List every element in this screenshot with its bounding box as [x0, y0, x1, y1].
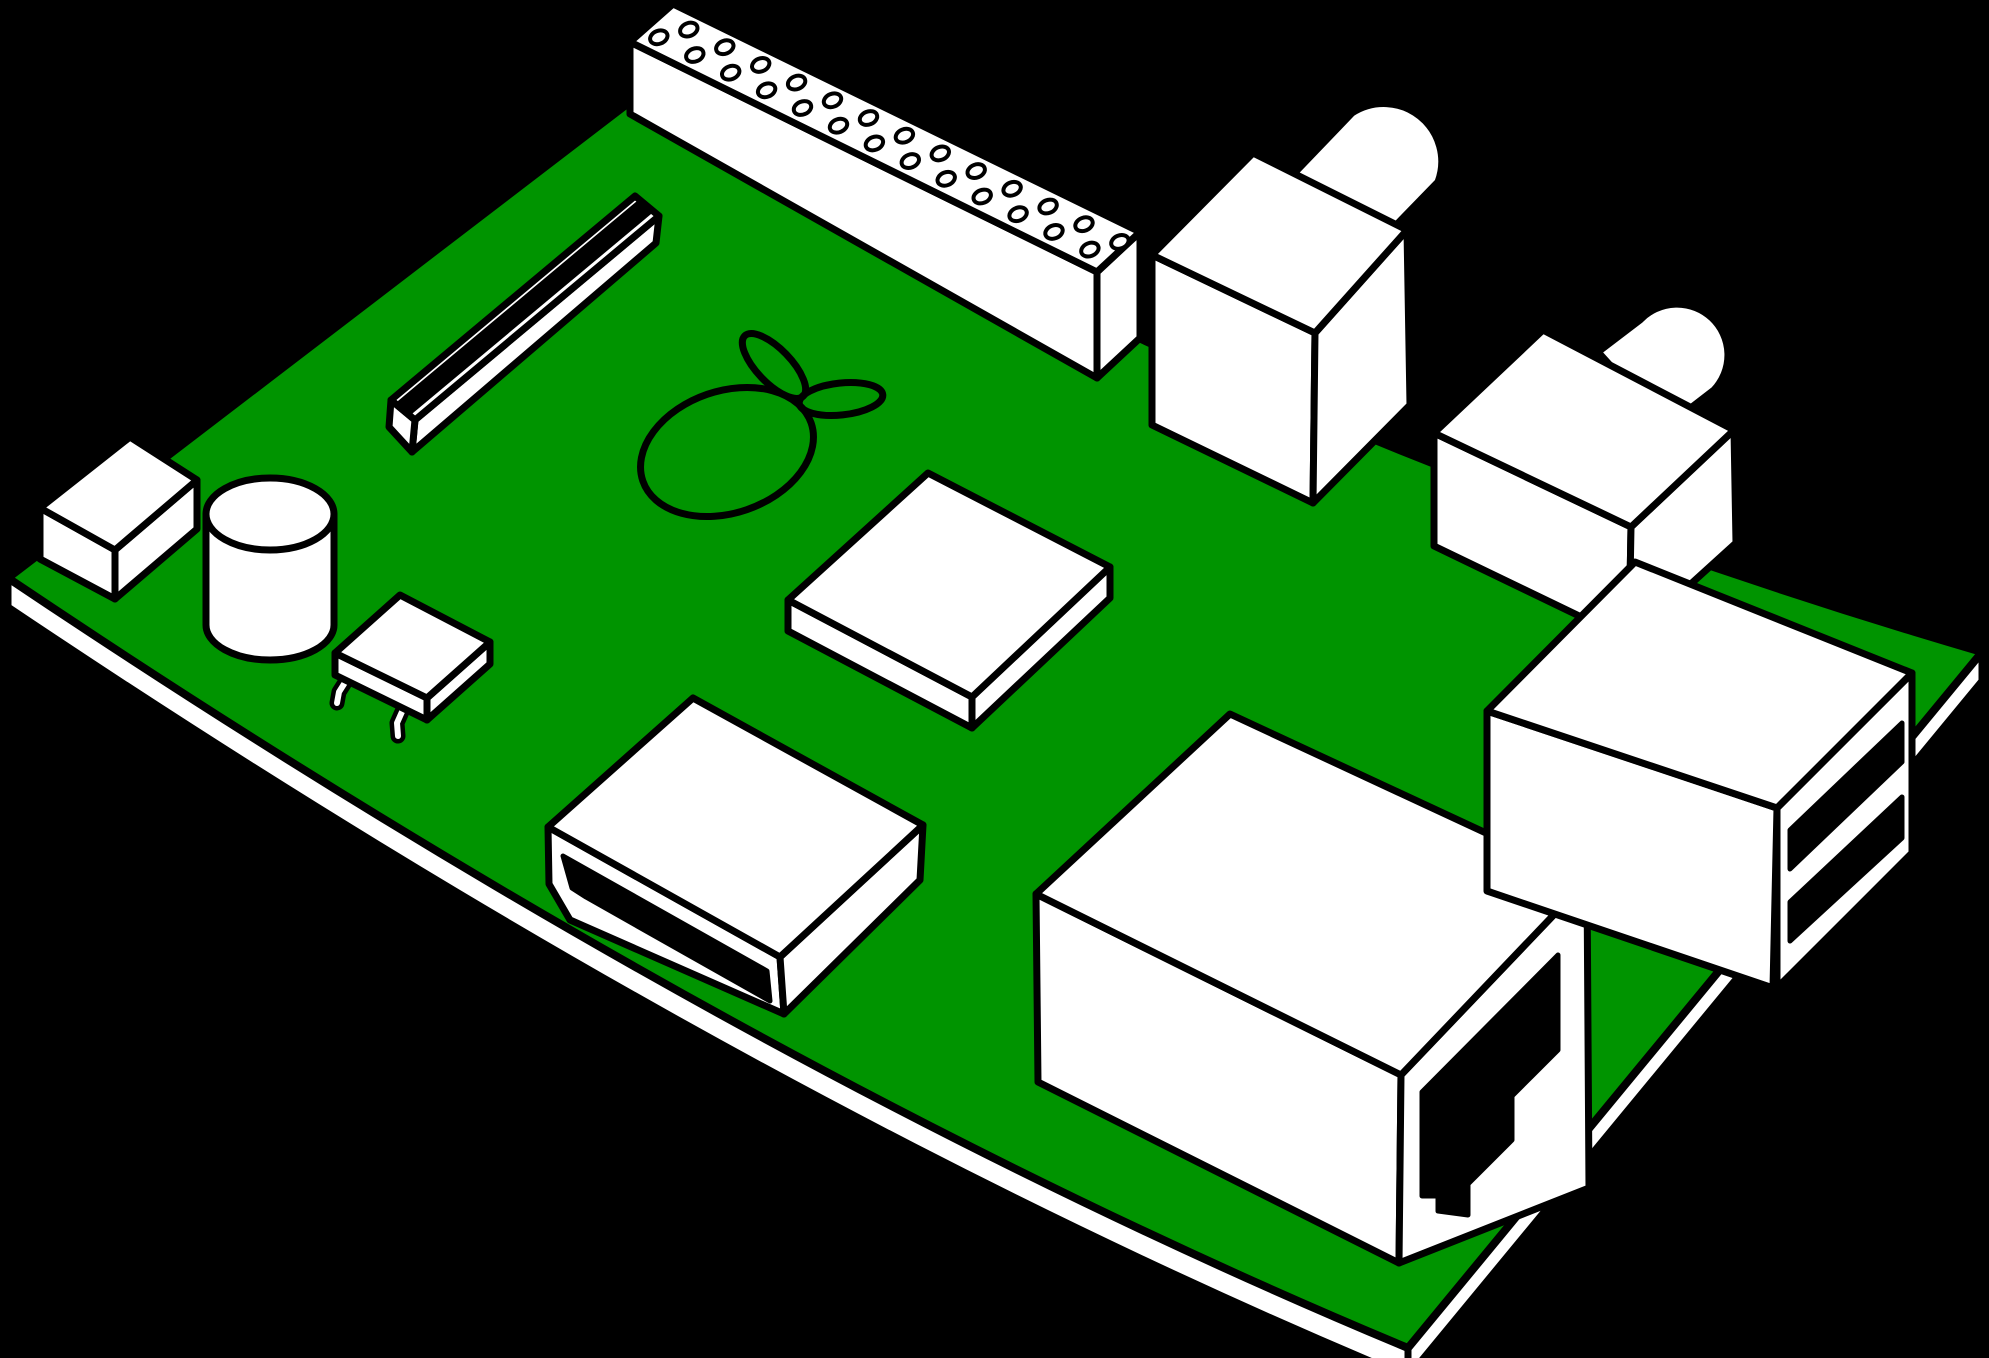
capacitor-top [206, 478, 334, 550]
raspberry-pi-illustration [0, 0, 1989, 1358]
capacitor [206, 478, 334, 660]
illustration-stage [0, 0, 1989, 1358]
